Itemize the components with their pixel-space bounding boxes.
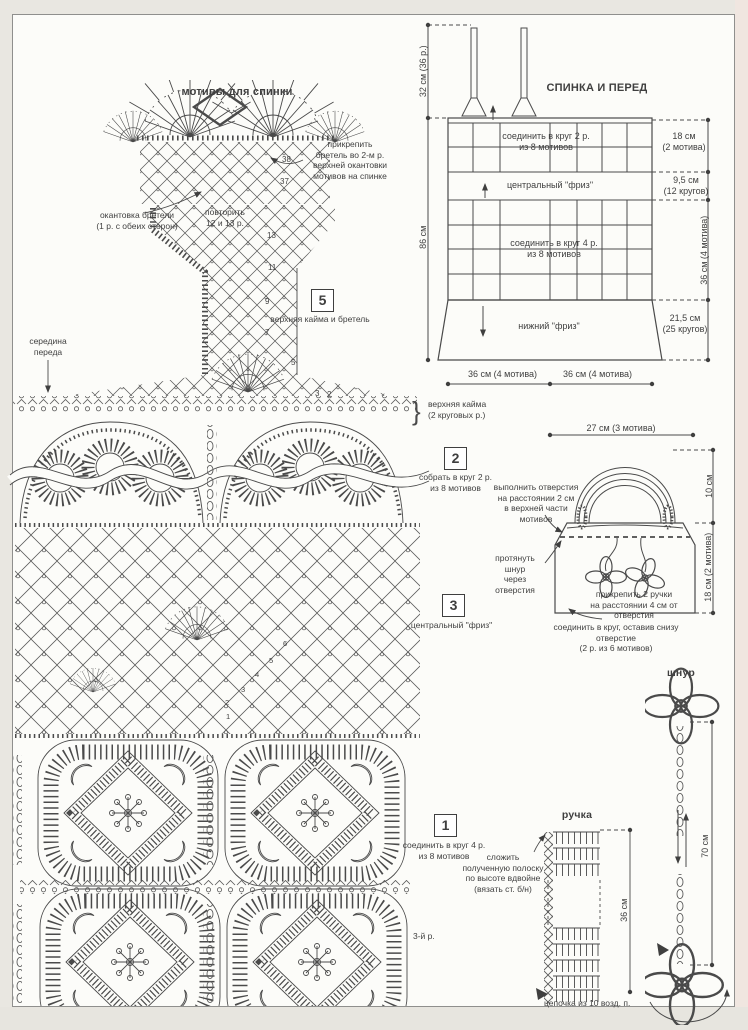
dim-strap-length: 32 см (36 р.) [418,31,429,111]
schematic-zone-main: соединить в круг 4 р. из 8 мотивов [484,238,624,259]
magazine-page: мотивы для спинки прикрепить бретель во … [0,0,748,1030]
bag-dim-handle: 10 см [704,456,715,516]
attach-strap-note: прикрепить бретель во 2-м р. верхней ока… [295,139,405,181]
bag-holes-note: выполнить отверстия на расстоянии 2 см в… [490,482,582,524]
mesh-row-number: 4 [255,671,259,679]
upper-border-brace: } [412,396,421,427]
row3-note: 3-й р. [413,931,449,942]
step-label-3: центральный "фриз" [394,620,509,631]
edge-number: 38 [282,156,291,164]
mesh-row-number: 2 [225,699,229,707]
bag-dim-body: 18 см (2 мотива) [703,521,714,613]
handle-title: ручка [549,809,605,821]
dim-frieze-band: 9,5 см (12 кругов) [651,175,721,196]
step-box-2: 2 [444,447,467,470]
strap-edging-note: окантовка бретели (1 р. с обеих сторон) [85,210,189,231]
edge-number: 37 [280,178,289,186]
step-box-5: 5 [311,289,334,312]
dim-main-band: 36 см (4 мотива) [699,205,710,295]
mesh-row-number: 3 [241,686,245,694]
mesh-row-number: 6 [283,640,287,648]
dim-bottom-band: 21,5 см (25 кругов) [650,313,720,334]
step-box-1: 1 [434,814,457,837]
strap-row-number: 13 [267,232,276,240]
pointer-arrowhead [657,943,669,956]
schematic-zone-frieze: центральный "фриз" [480,180,620,191]
dim-width-left: 36 см (4 мотива) [450,369,555,380]
cord-dim: 70 см [700,818,711,874]
strap-row-number: 5 [291,359,295,367]
schematic-title: СПИНКА И ПЕРЕД [537,82,657,94]
back-front-schematic [415,8,737,400]
strap-row-number: 7 [265,329,269,337]
dim-width-right: 36 см (4 мотива) [545,369,650,380]
mesh-row-number: 1 [226,713,230,721]
upper-border-note: верхняя кайма (2 круговых р.) [428,399,528,420]
bag-handles-note: прикрепить 2 ручки на расстоянии 4 см от… [573,589,695,621]
schematic-zone-bottom: нижний "фриз" [479,321,619,332]
handle-fold-note: сложить полученную полоску по высоте вдв… [460,852,546,894]
bag-join-note: соединить в круг, оставив снизу отверсти… [535,622,697,654]
dim-body-height: 86 см [418,207,429,267]
handle-chain-note: цепочка из 10 возд. п. [544,998,656,1009]
dim-top-band: 18 см (2 мотива) [649,131,719,152]
mesh-row-number: 5 [269,657,273,665]
cord-title: шнур [653,667,709,679]
page-bottom-edge [0,1007,748,1030]
repeat-note: повторить 12 и 13 р. [180,207,270,228]
bag-cord-note: протянуть шнур через отверстия [484,553,546,595]
strap-row-number: 2 [327,391,331,399]
handle-dim: 36 см [619,882,630,938]
center-front-label: середина переда [18,336,78,357]
strap-row-number: 11 [268,264,276,272]
cord-diagram [645,660,745,1025]
bag-dim-top: 27 см (3 мотива) [558,423,684,434]
strap-row-number: 3 [315,390,319,398]
strap-row-number: 9 [265,298,269,306]
step-label-5: верхняя кайма и бретель [252,314,388,325]
step-box-3: 3 [442,594,465,617]
back-motifs-title: мотивы для спинки [157,86,317,98]
schematic-zone-top: соединить в круг 2 р. из 8 мотивов [476,131,616,152]
